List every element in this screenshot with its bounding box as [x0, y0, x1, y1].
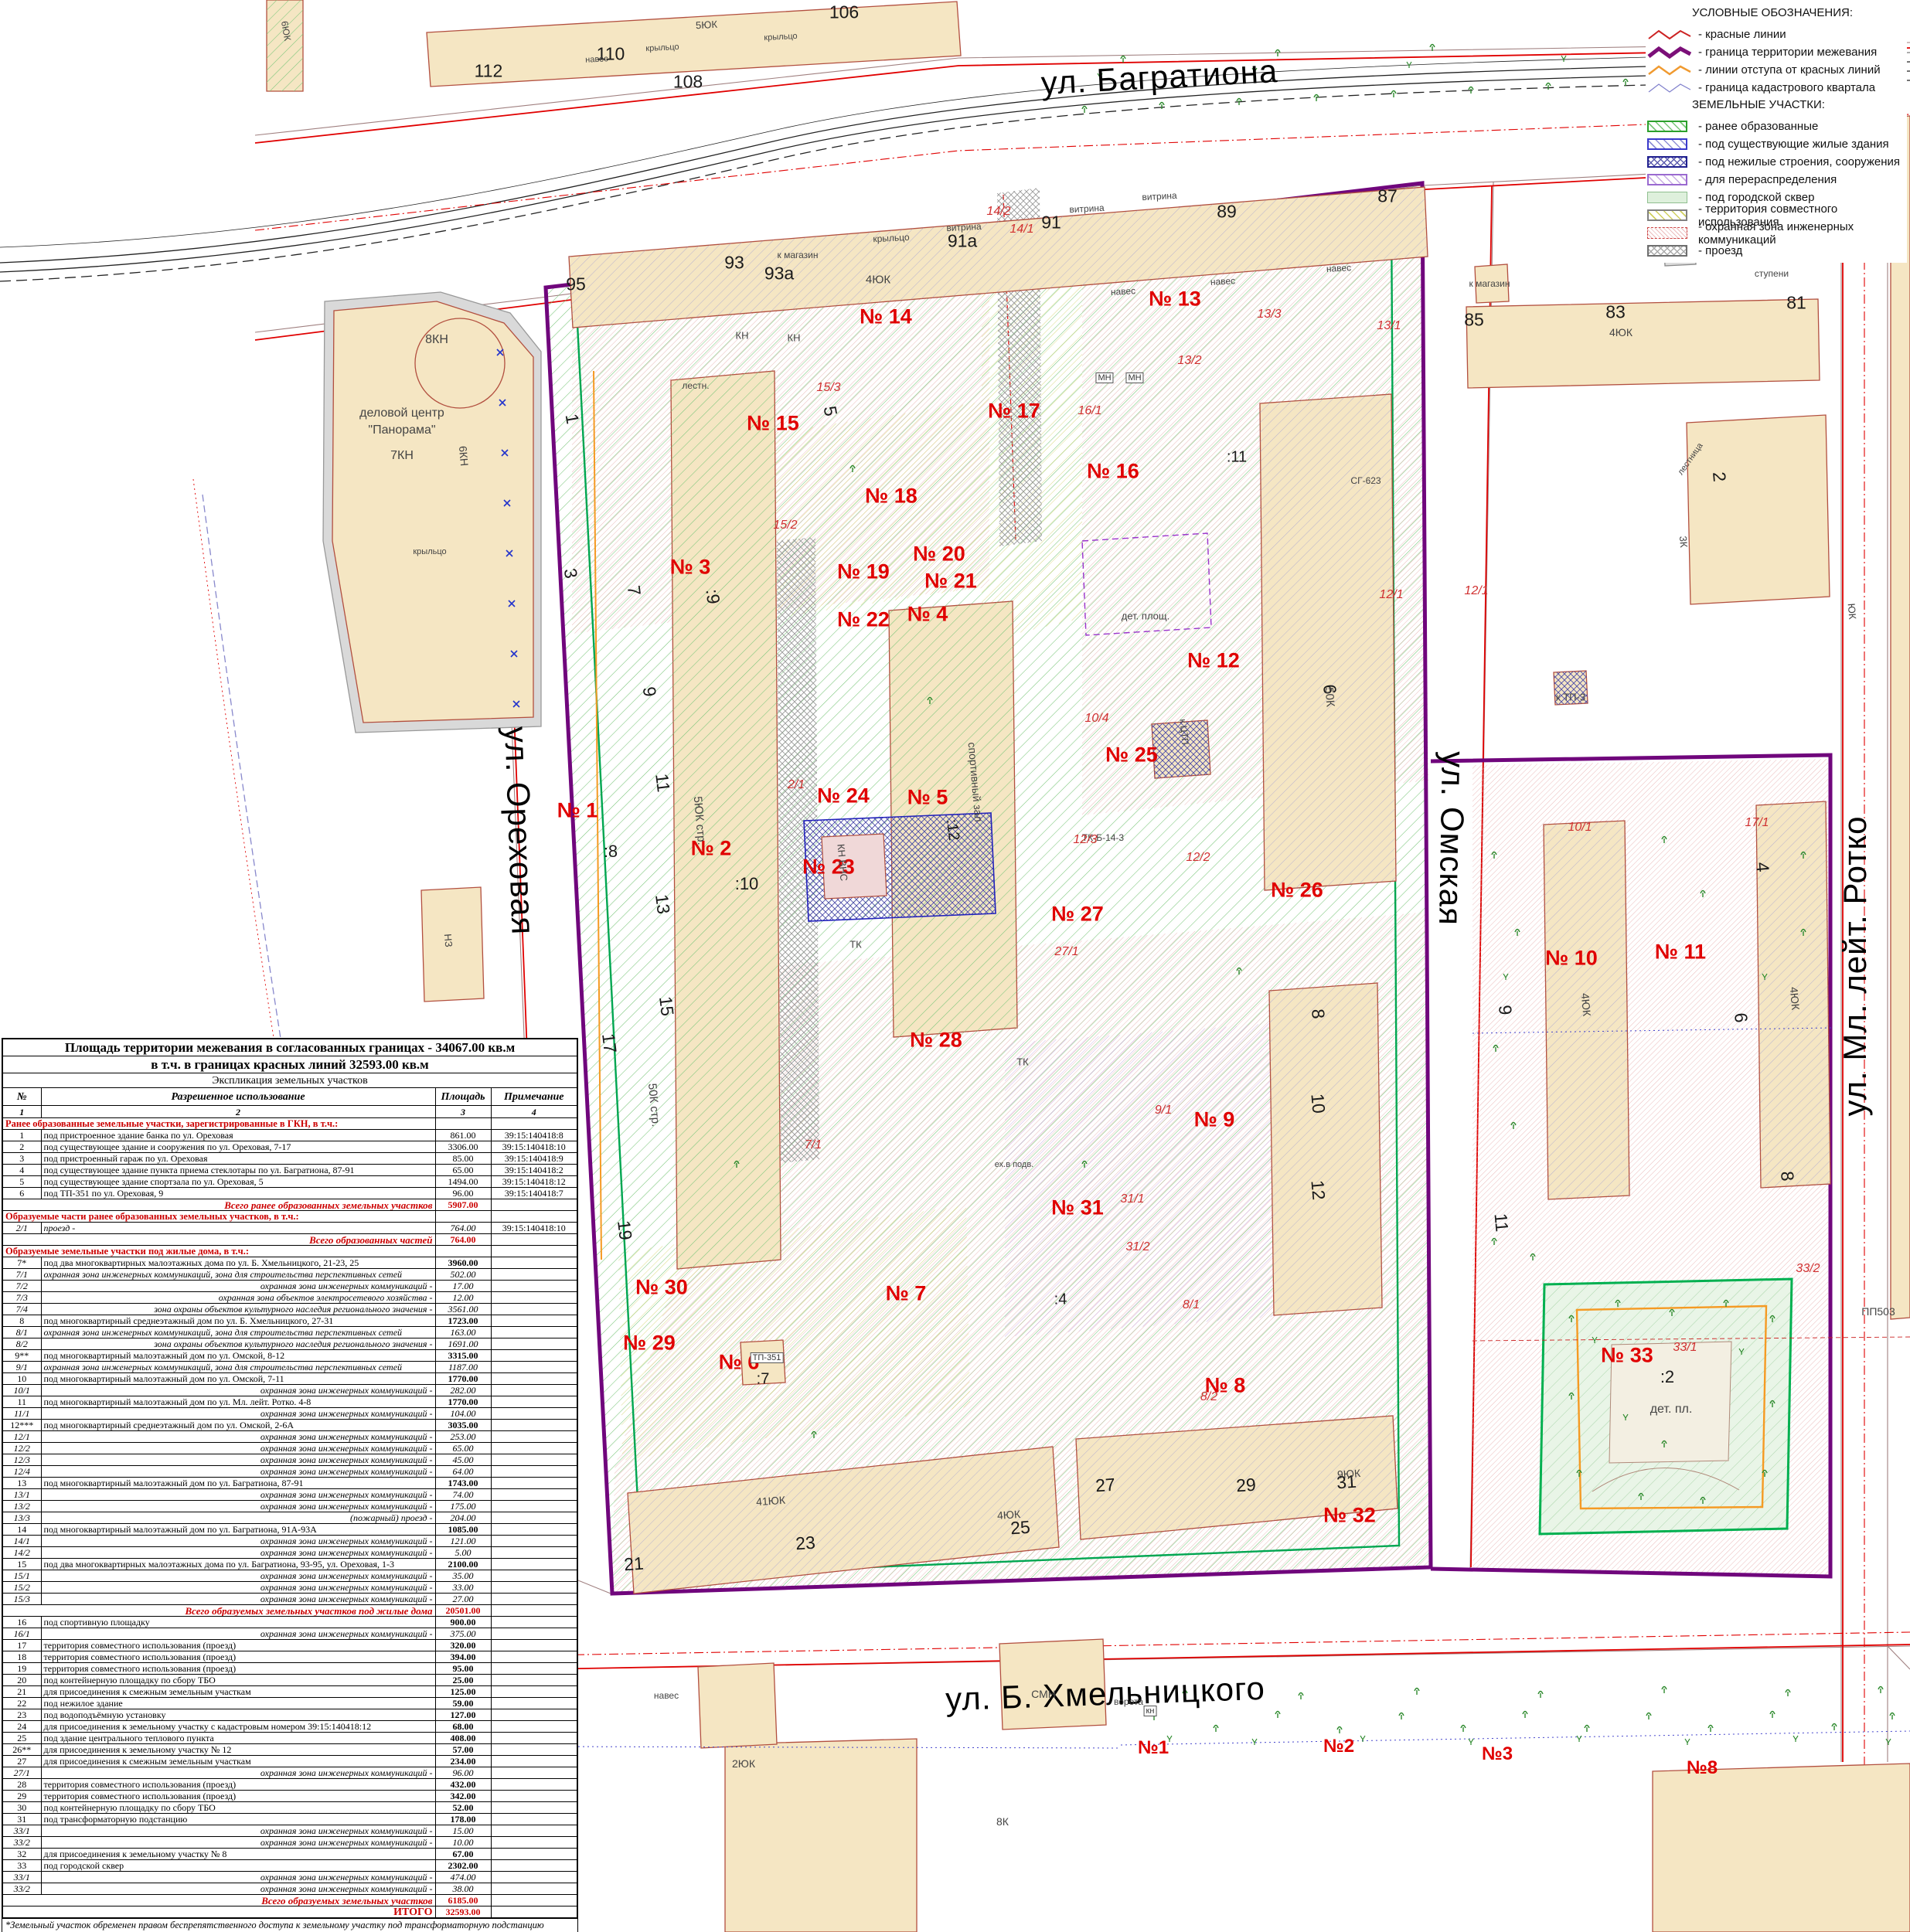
table-row: 7/4зона охраны объектов культурного насл…	[2, 1304, 577, 1315]
table-row: 3под пристроенный гараж по ул. Ореховая8…	[2, 1153, 577, 1165]
grass-icon	[1685, 1739, 1690, 1745]
table-row: 31под трансформаторную подстанцию178.00	[2, 1814, 577, 1825]
table-row: Всего образуемых земельных участков под …	[2, 1605, 577, 1617]
table-title-2: в т.ч. в границах красных линий 32593.00…	[2, 1056, 577, 1073]
tree-icon	[1538, 1692, 1543, 1699]
table-row: 24для присоединения к земельному участку…	[2, 1721, 577, 1733]
table-row: 9**под многоквартирный малоэтажный дом п…	[2, 1350, 577, 1362]
tree-icon	[1337, 1727, 1342, 1734]
tree-icon	[1623, 80, 1628, 87]
table-row: 2под существующее здание и сооружения по…	[2, 1141, 577, 1153]
legend-line-symbol	[1647, 63, 1692, 78]
legend-swatch	[1647, 138, 1687, 150]
grass-icon	[1561, 56, 1566, 62]
table-row: 7/3охранная зона объектов электросетевог…	[2, 1292, 577, 1304]
legend-swatch	[1647, 209, 1687, 221]
table-row: 14под многоквартирный малоэтажный дом по…	[2, 1524, 577, 1536]
table-row: 33под городской сквер2302.00	[2, 1860, 577, 1872]
legend-area-list: - ранее образованные- под существующие ж…	[1647, 117, 1907, 260]
tree-icon	[1391, 91, 1396, 98]
legend-item: - для перераспределения	[1647, 171, 1907, 189]
table-row: 17территория совместного использования (…	[2, 1640, 577, 1651]
table-row: 12/2охранная зона инженерных коммуникаци…	[2, 1443, 577, 1454]
grass-icon	[1360, 1736, 1365, 1742]
table-row: 27/1охранная зона инженерных коммуникаци…	[2, 1767, 577, 1779]
legend-title: УСЛОВНЫЕ ОБОЗНАЧЕНИЯ:	[1692, 6, 1907, 19]
table-row: ИТОГО32593.00	[2, 1906, 577, 1919]
legend-swatch	[1647, 156, 1687, 168]
tree-icon	[1214, 1726, 1218, 1733]
table-row: 15/2охранная зона инженерных коммуникаци…	[2, 1582, 577, 1594]
table-row: 29территория совместного использования (…	[2, 1791, 577, 1802]
table-row: 15/3охранная зона инженерных коммуникаци…	[2, 1594, 577, 1605]
legend-item-label: - для перераспределения	[1698, 173, 1837, 186]
table-row: 6под ТП-351 по ул. Ореховая, 996.0039:15…	[2, 1188, 577, 1199]
table-row: 33/1охранная зона инженерных коммуникаци…	[2, 1825, 577, 1837]
tree-icon	[1415, 1689, 1419, 1696]
legend-item: - ранее образованные	[1647, 117, 1907, 135]
table-row: 7/1охранная зона инженерных коммуникаций…	[2, 1269, 577, 1281]
legend-line-symbol	[1647, 27, 1692, 43]
legend-item-label: - проезд	[1698, 244, 1742, 257]
table-row: 5под существующее здание спортзала по ул…	[2, 1176, 577, 1188]
table-row: 12/4охранная зона инженерных коммуникаци…	[2, 1466, 577, 1478]
tree-icon	[1786, 1690, 1790, 1697]
table-row: 10под многоквартирный малоэтажный дом по…	[2, 1373, 577, 1385]
table-row: 11/1охранная зона инженерных коммуникаци…	[2, 1408, 577, 1420]
table-row: 8/1охранная зона инженерных коммуникаций…	[2, 1327, 577, 1338]
legend-line-symbol	[1647, 80, 1692, 96]
tree-icon	[1832, 1724, 1837, 1731]
legend-swatch	[1647, 192, 1687, 203]
tree-icon	[1546, 83, 1551, 90]
legend-item: - граница кадастрового квартала	[1647, 79, 1907, 97]
table-row: 15/1охранная зона инженерных коммуникаци…	[2, 1570, 577, 1582]
table-row: 33/1охранная зона инженерных коммуникаци…	[2, 1872, 577, 1883]
legend-item: - граница территории межевания	[1647, 43, 1907, 61]
table-colnums: 1234	[2, 1106, 577, 1118]
table-row: Всего образованных частей764.00	[2, 1234, 577, 1246]
table-row: 15под два многоквартирных малоэтажных до…	[2, 1559, 577, 1570]
footnote: *Земельный участок обременен правом бесп…	[5, 1920, 574, 1931]
tree-icon	[1585, 1726, 1589, 1733]
grass-icon	[1098, 73, 1102, 80]
table-row: 27для присоединения к смежным земельным …	[2, 1756, 577, 1767]
tree-icon	[1708, 1726, 1713, 1733]
table-row: Ранее образованные земельные участки, за…	[2, 1118, 577, 1130]
table-row: 9/1охранная зона инженерных коммуникаций…	[2, 1362, 577, 1373]
table-row: 14/1охранная зона инженерных коммуникаци…	[2, 1536, 577, 1547]
table-row: 33/2охранная зона инженерных коммуникаци…	[2, 1883, 577, 1895]
tree-icon	[1121, 56, 1125, 63]
vns-zone	[804, 813, 996, 921]
grass-icon	[1469, 1739, 1473, 1745]
table-row: 22под нежилое здание59.00	[2, 1698, 577, 1709]
table-row: 16/1охранная зона инженерных коммуникаци…	[2, 1628, 577, 1640]
legend-subtitle: ЗЕМЕЛЬНЫЕ УЧАСТКИ:	[1692, 98, 1907, 111]
table-row: 13под многоквартирный малоэтажный дом по…	[2, 1478, 577, 1489]
table-row: Образуемые земельные участки под жилые д…	[2, 1246, 577, 1257]
table-row: 11под многоквартирный малоэтажный дом по…	[2, 1396, 577, 1408]
table-row: 12***под многоквартирный среднеэтажный д…	[2, 1420, 577, 1431]
table-header: №Разрешенное использованиеПлощадьПримеча…	[2, 1088, 577, 1106]
table-row: 12/1охранная зона инженерных коммуникаци…	[2, 1431, 577, 1443]
table-row: 13/2охранная зона инженерных коммуникаци…	[2, 1501, 577, 1512]
table-row: 7*под два многоквартирных малоэтажных до…	[2, 1257, 577, 1269]
table-title: Площадь территории межевания в согласова…	[2, 1039, 577, 1056]
tree-icon	[1523, 1712, 1527, 1719]
table-row: 13/3(пожарный) проезд -204.00	[2, 1512, 577, 1524]
tree-icon	[1159, 103, 1164, 110]
grass-icon	[1793, 1736, 1798, 1742]
legend-item-label: - под нежилые строения, сооружения	[1698, 155, 1900, 168]
legend-item: - линии отступа от красных линий	[1647, 61, 1907, 79]
table-row: 26**для присоединения к земельному участ…	[2, 1744, 577, 1756]
explication-table: Площадь территории межевания в согласова…	[2, 1038, 578, 1932]
table-row: 30под контейнерную площадку по сбору ТБО…	[2, 1802, 577, 1814]
grass-icon	[1167, 1736, 1172, 1742]
table-row: 8под многоквартирный среднеэтажный дом п…	[2, 1315, 577, 1327]
legend-item: - охранная зона инженерных коммуникаций	[1647, 224, 1907, 242]
table-footnotes: *Земельный участок обременен правом бесп…	[2, 1919, 578, 1932]
legend-line-list: - красные линии- граница территории меже…	[1647, 26, 1907, 97]
legend-item-label: - под существующие жилые здания	[1698, 138, 1889, 151]
table-row: 2/1проезд -764.0039:15:140418:10	[2, 1223, 577, 1234]
legend-swatch	[1647, 245, 1687, 257]
table-row: 12/3охранная зона инженерных коммуникаци…	[2, 1454, 577, 1466]
legend-item-label: - граница территории межевания	[1698, 46, 1877, 59]
cadastral-survey-plan: ул. Багратионаул. Ореховаяул. Омскаяул. …	[0, 0, 1910, 1932]
legend-item-label: - красные линии	[1698, 28, 1786, 41]
table-row: 18территория совместного использования (…	[2, 1651, 577, 1663]
table-row: 21для присоединения к смежным земельным …	[2, 1686, 577, 1698]
legend-swatch	[1647, 174, 1687, 185]
table-row: 1под пристроенное здание банка по ул. Ор…	[2, 1130, 577, 1141]
tree-icon	[1770, 1712, 1775, 1719]
table-row: Всего ранее образованных земельных участ…	[2, 1199, 577, 1211]
table-row: 20под контейнерную площадку по сбору ТБО…	[2, 1675, 577, 1686]
table-row: 10/1охранная зона инженерных коммуникаци…	[2, 1385, 577, 1396]
legend-item: - красные линии	[1647, 26, 1907, 43]
tree-icon	[1275, 1712, 1280, 1719]
legend-item-label: - линии отступа от красных линий	[1698, 63, 1881, 77]
legend-item-label: - ранее образованные	[1698, 120, 1818, 133]
table-row: 14/2охранная зона инженерных коммуникаци…	[2, 1547, 577, 1559]
table-row: 16под спортивную площадку900.00	[2, 1617, 577, 1628]
table-row: 8/2зона охраны объектов культурного насл…	[2, 1338, 577, 1350]
tree-icon	[1314, 95, 1319, 102]
legend-swatch	[1647, 227, 1687, 239]
table-row: 32для присоединения к земельному участку…	[2, 1849, 577, 1860]
tree-icon	[1399, 1713, 1404, 1720]
table-row: 28территория совместного использования (…	[2, 1779, 577, 1791]
tree-icon	[1152, 1714, 1156, 1721]
table-row: Всего образуемых земельных участков6185.…	[2, 1895, 577, 1906]
tree-icon	[1890, 1713, 1895, 1720]
table-row: 33/2охранная зона инженерных коммуникаци…	[2, 1837, 577, 1849]
grass-icon	[1577, 1736, 1581, 1742]
tree-icon	[1461, 1726, 1466, 1733]
grass-icon	[1252, 1739, 1257, 1745]
table-subtitle: Экспликация земельных участков	[2, 1073, 577, 1088]
legend: УСЛОВНЫЕ ОБОЗНАЧЕНИЯ: - красные линии- г…	[1646, 3, 1907, 263]
tree-icon	[1299, 1693, 1303, 1700]
table-row: 4под существующее здание пункта приема с…	[2, 1165, 577, 1176]
table-row: 7/2охранная зона инженерных коммуникаций…	[2, 1281, 577, 1292]
legend-item-label: - граница кадастрового квартала	[1698, 81, 1875, 94]
legend-item: - под нежилые строения, сооружения	[1647, 153, 1907, 171]
tree-icon	[1662, 1687, 1667, 1694]
legend-line-symbol	[1647, 45, 1692, 60]
tree-icon	[1878, 1687, 1883, 1694]
legend-item: - под существующие жилые здания	[1647, 135, 1907, 153]
grass-icon	[1886, 1739, 1891, 1745]
legend-swatch	[1647, 121, 1687, 132]
table-row: 19территория совместного использования (…	[2, 1663, 577, 1675]
legend-item-label: - охранная зона инженерных коммуникаций	[1698, 220, 1907, 247]
table-row: 25под здание центрального теплового пунк…	[2, 1733, 577, 1744]
tree-icon	[1183, 1691, 1187, 1698]
table-row: Образуемые части ранее образованных земе…	[2, 1211, 577, 1223]
table-row: 23под водоподъёмную установку127.00	[2, 1709, 577, 1721]
tree-icon	[1646, 1713, 1651, 1720]
table-row: 13/1охранная зона инженерных коммуникаци…	[2, 1489, 577, 1501]
tree-icon	[1082, 107, 1087, 114]
